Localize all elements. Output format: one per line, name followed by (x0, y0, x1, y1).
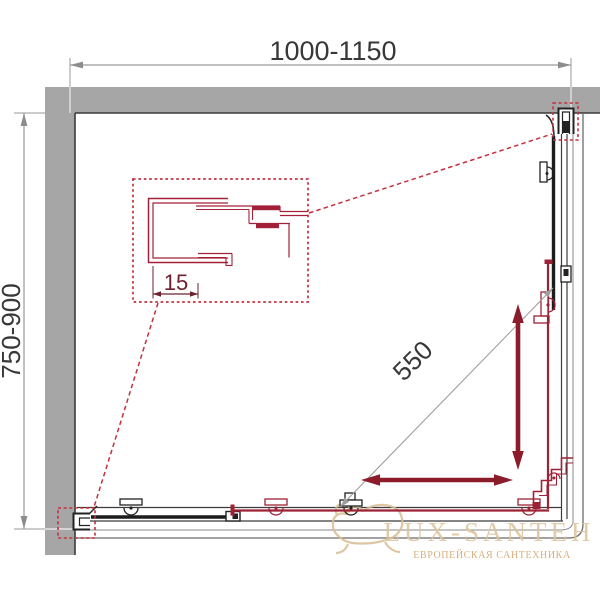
wall-profile-top-right (559, 109, 574, 135)
adjustment-arrows (361, 304, 524, 486)
door-edge-cap (231, 505, 235, 516)
technical-drawing: 1000-1150 750-900 LUX-SANTEH (0, 0, 600, 600)
profile-adjustment-label: 15 (164, 270, 188, 295)
dimension-width-label: 1000-1150 (269, 36, 396, 66)
callout-leader-line (309, 134, 552, 213)
gasket-hatch (256, 224, 279, 228)
arrowhead-top (21, 113, 28, 126)
wall-left (45, 87, 75, 555)
dimension-depth-label: 750-900 (0, 283, 26, 378)
arrowhead-right (558, 62, 571, 69)
watermark-tagline-text: ЕВРОПЕЙСКАЯ САНТЕХНИКА (413, 549, 571, 561)
arrowhead-left (70, 62, 83, 69)
detail-callout-box (133, 179, 308, 302)
adjust-arrow-horizontal (361, 474, 513, 486)
fixed-panels (91, 115, 554, 517)
door-rails (75, 115, 567, 521)
door-stopper (561, 266, 571, 282)
watermark-brand-text: LUX-SANTEH (384, 517, 595, 547)
callouts (58, 103, 578, 538)
hardware-black (74, 109, 574, 530)
watermark: LUX-SANTEH ЕВРОПЕЙСКАЯ САНТЕХНИКА (333, 504, 595, 561)
gasket-hatch (253, 206, 280, 210)
detail-callout: 15 (133, 179, 308, 302)
wall-top (45, 87, 600, 113)
arrowhead-bottom (21, 516, 28, 529)
technical-drawing-page: 1000-1150 750-900 LUX-SANTEH (0, 0, 600, 600)
wall-bracket (540, 162, 554, 182)
callout-leader-line (94, 303, 158, 507)
profile-core (563, 121, 570, 133)
profile-outer (74, 514, 91, 530)
tray-inner-rim (75, 113, 573, 530)
diagonal-dimension-label: 550 (387, 335, 439, 387)
